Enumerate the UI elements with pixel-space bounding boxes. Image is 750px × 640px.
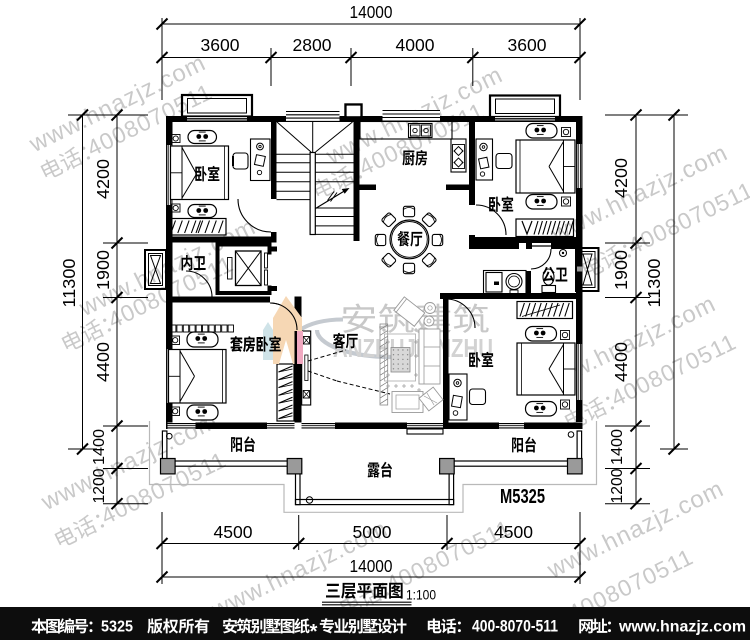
svg-text:1400: 1400 <box>609 429 626 465</box>
svg-text:1200: 1200 <box>91 468 108 503</box>
svg-text:M5325: M5325 <box>500 486 545 508</box>
svg-text:4500: 4500 <box>214 522 253 542</box>
svg-text:1900: 1900 <box>93 250 113 290</box>
svg-text:ANZHUJIANZHU: ANZHUJIANZHU <box>333 333 493 363</box>
svg-text:4500: 4500 <box>494 522 533 542</box>
svg-text:11300: 11300 <box>644 258 664 307</box>
svg-text:400-8070-511: 400-8070-511 <box>472 618 558 636</box>
svg-text:1200: 1200 <box>609 468 626 503</box>
svg-text:*: * <box>310 621 318 640</box>
svg-text:4200: 4200 <box>93 159 113 199</box>
svg-text:5000: 5000 <box>353 522 392 542</box>
svg-text:14000: 14000 <box>350 2 393 22</box>
svg-text:4400: 4400 <box>611 342 631 382</box>
svg-text:1900: 1900 <box>611 250 631 290</box>
svg-text:14000: 14000 <box>350 556 393 576</box>
svg-text:1:100: 1:100 <box>406 587 436 603</box>
svg-text:4000: 4000 <box>396 35 435 55</box>
svg-text:5325: 5325 <box>101 619 133 636</box>
svg-text:www.hnazjz.com: www.hnazjz.com <box>618 619 746 636</box>
svg-text:11300: 11300 <box>59 258 79 307</box>
svg-text:3600: 3600 <box>508 35 547 55</box>
svg-text:2800: 2800 <box>293 35 332 55</box>
svg-text:4200: 4200 <box>611 158 631 198</box>
svg-text:3600: 3600 <box>201 35 240 55</box>
svg-text:1400: 1400 <box>91 429 108 465</box>
svg-text:4400: 4400 <box>93 342 113 382</box>
